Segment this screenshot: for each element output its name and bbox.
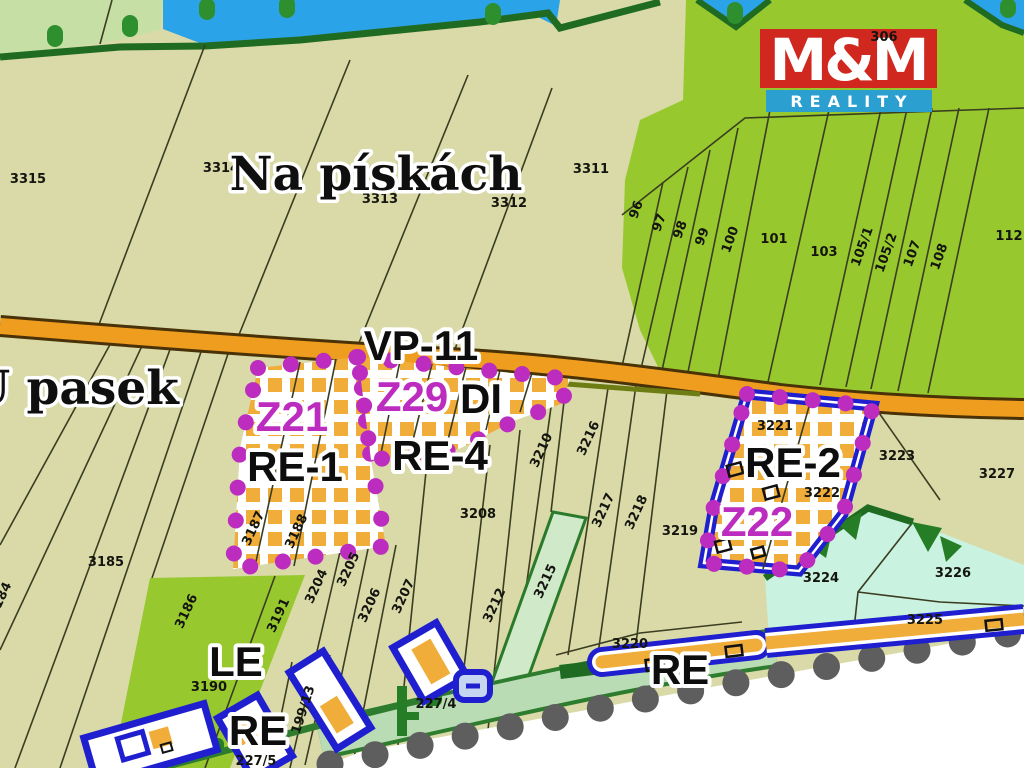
- parcel-label: 103: [810, 245, 837, 260]
- zone-label-re-west: RE: [229, 707, 287, 754]
- parcel-label: 3225: [907, 613, 943, 628]
- parcel-label: 227/4: [416, 697, 457, 712]
- parcel-label: 306: [870, 30, 897, 45]
- zone-label-re-2: RE-2: [745, 439, 841, 486]
- zone-label-re-east: RE: [651, 646, 709, 693]
- map-canvas: M&M REALITY 3315 3314 3313 3312 3311 306…: [0, 0, 1024, 768]
- culvert-icon: [456, 672, 490, 700]
- zone-label-z22: Z22: [721, 498, 793, 545]
- parcel-label: 3311: [573, 162, 609, 177]
- parcel-label: 3220: [612, 637, 648, 652]
- logo-brand-text: M&M: [769, 26, 926, 94]
- parcel-label: 3227: [979, 467, 1015, 482]
- parcel-label: 112: [995, 229, 1022, 244]
- parcel-label: 3208: [460, 507, 496, 522]
- cadastral-map[interactable]: M&M REALITY 3315 3314 3313 3312 3311 306…: [0, 0, 1024, 768]
- zone-label-z29: Z29: [376, 373, 448, 420]
- parcel-label: 3224: [803, 571, 839, 586]
- zone-label-re-1: RE-1: [247, 443, 343, 490]
- zone-label-vp-11: VP-11: [364, 322, 478, 369]
- parcel-label: 3223: [879, 449, 915, 464]
- parcel-label: 3185: [88, 555, 124, 570]
- parcel-label: 3315: [10, 172, 46, 187]
- zone-label-le: LE: [209, 638, 263, 685]
- parcel-label: 3219: [662, 524, 698, 539]
- parcel-label: 3221: [757, 419, 793, 434]
- parcel-label: 101: [760, 232, 787, 247]
- zone-label-z21: Z21: [256, 393, 328, 440]
- place-name-na-piskach: Na pískách: [230, 147, 523, 202]
- zone-label-re-4: RE-4: [392, 432, 488, 479]
- place-name-u-pasek: U pasek: [0, 361, 180, 416]
- parcel-label: 227/5: [236, 754, 277, 768]
- parcel-label: 3226: [935, 566, 971, 581]
- brand-logo[interactable]: M&M REALITY: [760, 26, 937, 112]
- zone-label-di: DI: [460, 375, 502, 422]
- logo-tagline-text: REALITY: [790, 92, 913, 111]
- parcel-label: 3222: [804, 486, 840, 501]
